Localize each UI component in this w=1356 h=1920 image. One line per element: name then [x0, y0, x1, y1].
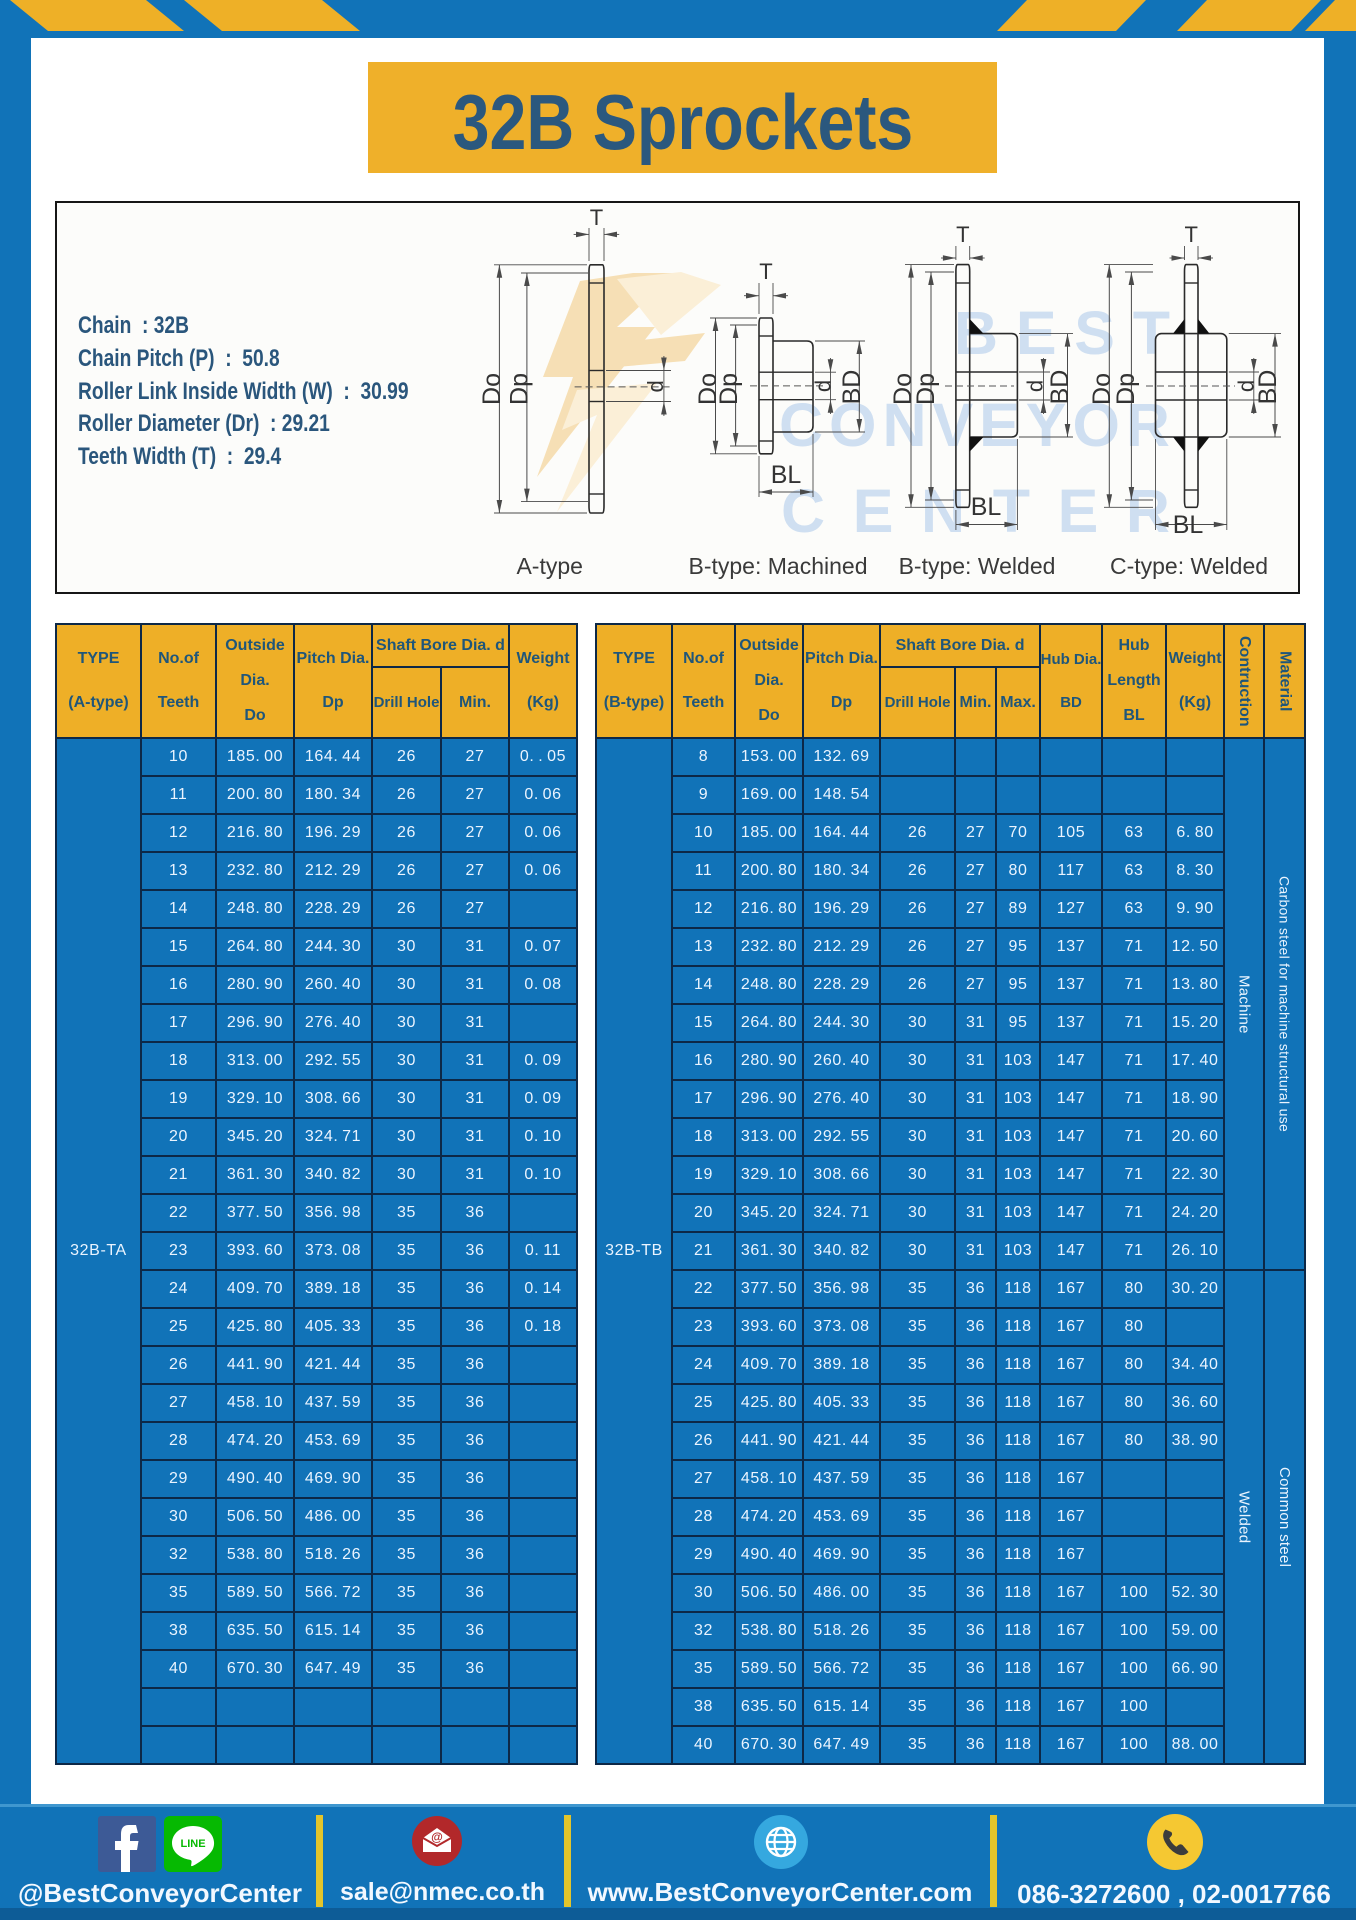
- svg-text:BL: BL: [971, 493, 1002, 521]
- svg-text:Dp: Dp: [912, 373, 940, 405]
- svg-text:BD: BD: [838, 370, 866, 405]
- svg-text:A-type: A-type: [516, 553, 582, 579]
- svg-text:BD: BD: [1254, 370, 1282, 405]
- svg-text:d: d: [811, 380, 836, 392]
- svg-text:d: d: [643, 380, 668, 392]
- svg-text:d: d: [1023, 380, 1048, 392]
- svg-text:T: T: [590, 205, 603, 230]
- svg-text:T: T: [759, 259, 772, 284]
- svg-text:BL: BL: [1173, 511, 1204, 539]
- svg-text:B-type: Welded: B-type: Welded: [899, 553, 1056, 579]
- svg-text:C-type: Welded: C-type: Welded: [1110, 553, 1268, 579]
- svg-text:T: T: [1184, 222, 1197, 247]
- svg-text:Dp: Dp: [505, 373, 533, 405]
- svg-text:BD: BD: [1046, 370, 1074, 405]
- svg-text:BL: BL: [771, 461, 802, 489]
- svg-text:B-type: Machined: B-type: Machined: [689, 553, 868, 579]
- svg-text:LINE: LINE: [180, 1838, 205, 1850]
- svg-text:@: @: [431, 1830, 443, 1844]
- svg-text:Dp: Dp: [1112, 373, 1140, 405]
- svg-text:Dp: Dp: [715, 373, 743, 405]
- svg-text:T: T: [956, 222, 969, 247]
- svg-text:Do: Do: [478, 373, 506, 405]
